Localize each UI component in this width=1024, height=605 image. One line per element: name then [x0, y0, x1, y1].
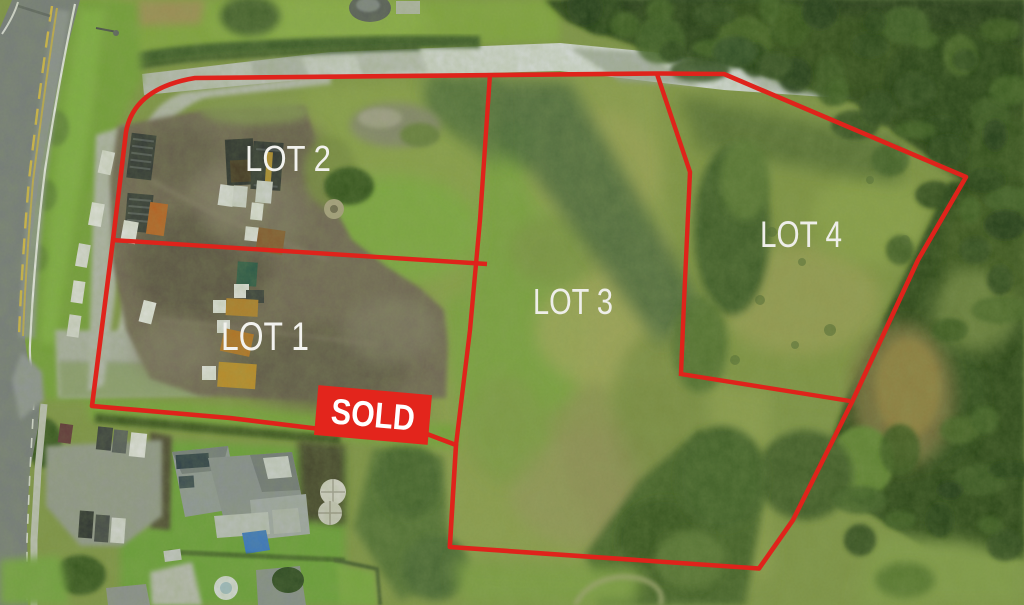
svg-text:LOT 4: LOT 4 — [760, 214, 842, 255]
svg-text:LOT 1: LOT 1 — [221, 315, 309, 359]
svg-text:LOT 3: LOT 3 — [533, 281, 613, 322]
svg-text:LOT 2: LOT 2 — [245, 138, 331, 179]
svg-text:SOLD: SOLD — [329, 390, 416, 438]
